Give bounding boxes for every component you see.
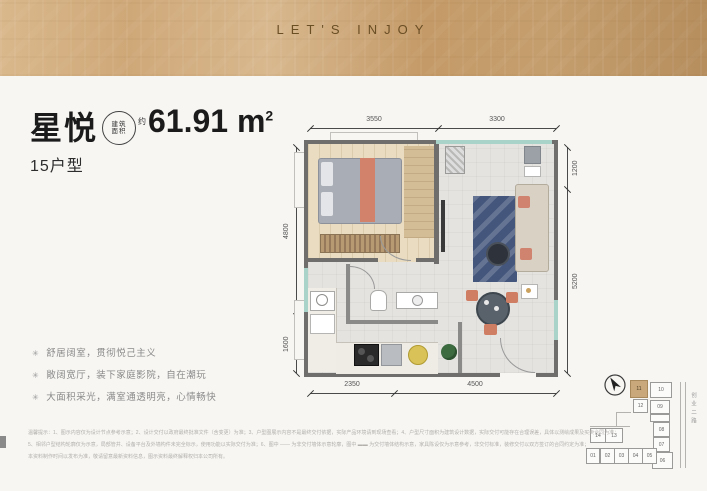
bullet-icon: ✳ bbox=[32, 393, 39, 402]
dim-top-2: 3300 bbox=[477, 116, 517, 123]
dining-chair bbox=[466, 290, 478, 301]
coffee-table bbox=[486, 242, 510, 266]
bathroom-wall bbox=[346, 320, 438, 324]
keyplan-unit: 12 bbox=[633, 399, 648, 413]
area-badge-circle: 建筑 面积 bbox=[102, 111, 136, 145]
plant bbox=[441, 344, 457, 360]
bedroom-closet bbox=[404, 146, 434, 238]
washer-door bbox=[316, 294, 328, 306]
ac-unit bbox=[524, 146, 541, 164]
keyplan-outline bbox=[616, 412, 631, 413]
tv-console bbox=[441, 200, 445, 252]
dining-table bbox=[476, 292, 510, 326]
unit-name-title: 星悦 bbox=[30, 103, 98, 149]
pillow bbox=[321, 192, 333, 216]
burner bbox=[358, 348, 365, 355]
dim-right-2: 5200 bbox=[572, 263, 579, 299]
dim-top-1: 3550 bbox=[354, 116, 394, 123]
burner bbox=[367, 355, 374, 362]
keyplan-outline bbox=[616, 412, 617, 427]
dining-window bbox=[554, 300, 558, 340]
fridge bbox=[310, 314, 335, 334]
dim-bottom-1: 2350 bbox=[332, 381, 372, 388]
plate bbox=[484, 300, 489, 305]
dim-left-2: 1600 bbox=[283, 326, 290, 362]
sink bbox=[412, 295, 423, 306]
floor-plan bbox=[304, 140, 558, 377]
feature-item: ✳大面积采光，满室通透明亮，心情畅快 bbox=[32, 389, 216, 403]
plate bbox=[494, 306, 499, 311]
sofa-cushion bbox=[518, 196, 530, 208]
living-rug bbox=[473, 196, 517, 282]
dim-tick bbox=[553, 125, 560, 132]
fruit-plate bbox=[408, 345, 428, 365]
interior-wall bbox=[308, 258, 378, 262]
approx-label: 约 bbox=[138, 116, 146, 127]
area-badge-line2: 面积 bbox=[112, 128, 127, 135]
unit-type-label: 15户型 bbox=[30, 152, 84, 176]
bed-runner bbox=[360, 158, 375, 222]
dim-tick bbox=[553, 390, 560, 397]
edge-mark bbox=[0, 436, 6, 448]
disclaimer-line: 温馨提示：1、图示内容仅为设计节点参考示意；2、设计交付以政府最终批准文件（含变… bbox=[28, 427, 688, 439]
dining-chair bbox=[484, 324, 497, 335]
brand-logo-text: LET'S INJOY bbox=[0, 22, 707, 37]
toilet bbox=[370, 290, 387, 311]
dining-chair bbox=[506, 292, 518, 303]
area-badge-line1: 建筑 bbox=[112, 121, 127, 128]
keyplan-unit: 10 bbox=[650, 382, 672, 398]
header-band: LET'S INJOY bbox=[0, 0, 707, 76]
decor-dot bbox=[526, 288, 531, 293]
dim-right-1: 1200 bbox=[572, 150, 579, 186]
dishwasher bbox=[381, 344, 402, 366]
interior-wall bbox=[434, 144, 439, 264]
disclaimer-line: 5、相邻户型结构轮廓仅为示意，局部管井、设备平台及外墙构件未完全标示，使用功能以… bbox=[28, 439, 688, 451]
interior-wall bbox=[416, 258, 435, 262]
dim-line-bottom bbox=[310, 393, 556, 394]
dim-line-right bbox=[567, 147, 568, 373]
area-value: 61.91 m2 bbox=[148, 103, 273, 140]
keyplan-shaft bbox=[650, 414, 670, 422]
dim-line-top bbox=[310, 128, 556, 129]
bullet-icon: ✳ bbox=[32, 371, 39, 380]
dim-bottom-2: 4500 bbox=[455, 381, 495, 388]
geometric-pattern bbox=[0, 0, 707, 76]
balcony-window bbox=[436, 140, 552, 144]
cooktop bbox=[354, 344, 379, 366]
brochure-page: LET'S INJOY 星悦 建筑 面积 约 61.91 m2 15户型 ✳舒居… bbox=[0, 0, 707, 491]
disclaimer-line: 本资料制作时间以发布为准，敬请留意最新资料信息，图示资料最终解释权归本公司所有。 bbox=[28, 451, 688, 463]
road-label: 创业二路 bbox=[689, 392, 697, 426]
keyplan-unit-highlight: 11 bbox=[630, 380, 648, 398]
keyplan-unit: 09 bbox=[650, 400, 670, 414]
shelf bbox=[524, 166, 541, 177]
building-key-plan: 11 10 12 09 08 07 06 14 13 01 02 03 04 0… bbox=[586, 366, 707, 484]
shaft-hatch bbox=[445, 146, 465, 174]
interior-wall-stub bbox=[458, 322, 462, 373]
bullet-icon: ✳ bbox=[32, 349, 39, 358]
pillow bbox=[321, 162, 333, 186]
feature-item: ✳舒居阔室，贯彻悦己主义 bbox=[32, 345, 156, 359]
feature-item: ✳敞阔宽厅，装下家庭影院，自在潮玩 bbox=[32, 367, 206, 381]
area-exponent: 2 bbox=[265, 107, 273, 123]
entry-door-gap bbox=[500, 373, 536, 377]
dim-left-1: 4800 bbox=[283, 213, 290, 249]
sofa-cushion bbox=[520, 248, 532, 260]
